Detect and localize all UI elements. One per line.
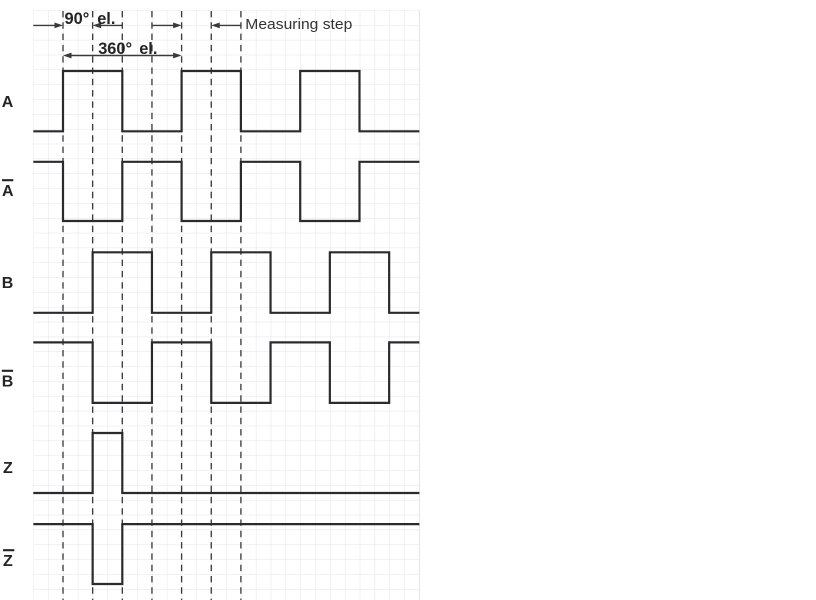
svg-text:B: B bbox=[2, 374, 14, 391]
svg-text:Measuring step: Measuring step bbox=[245, 17, 352, 33]
svg-text:A: A bbox=[2, 94, 14, 111]
svg-text:B: B bbox=[2, 275, 14, 292]
svg-text:Z: Z bbox=[3, 460, 13, 477]
svg-text:90°: 90° bbox=[65, 10, 90, 28]
svg-text:360°: 360° bbox=[98, 40, 132, 58]
svg-text:el.: el. bbox=[139, 40, 157, 58]
svg-text:el.: el. bbox=[97, 10, 115, 28]
svg-text:Z: Z bbox=[3, 553, 13, 570]
svg-text:A: A bbox=[2, 183, 14, 200]
